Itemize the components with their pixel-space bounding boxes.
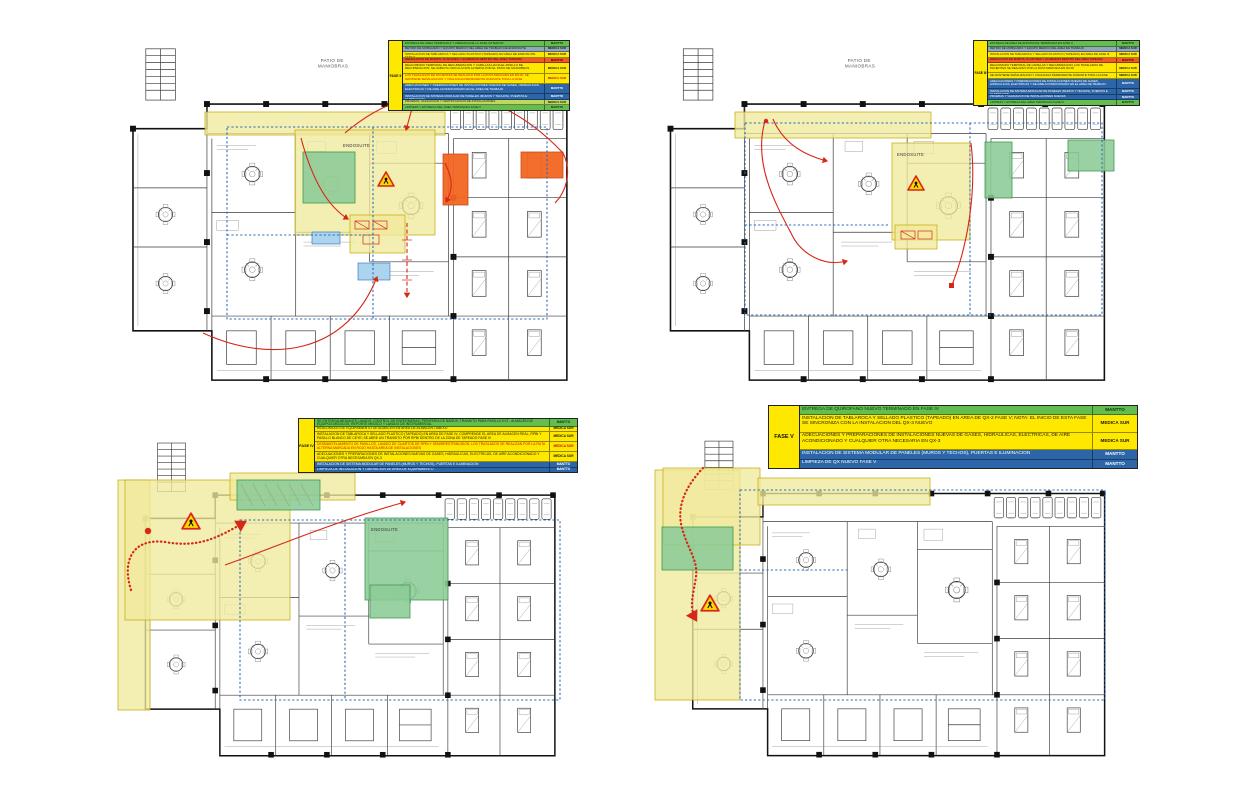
legend-row-responsible: MANTTO bbox=[544, 58, 569, 63]
legend-row: ADECUACIONES Y PREPARACIONES DE INSTALAC… bbox=[800, 433, 1137, 451]
legend-row-description: ADECUACIONES Y PREPARACIONES DE INSTALAC… bbox=[988, 79, 1116, 88]
legend-row: INSTALACION DE SISTEMA MODULAR DE PANELE… bbox=[800, 450, 1137, 459]
note-box-blue bbox=[312, 232, 340, 244]
plan-fase-v bbox=[648, 428, 1140, 765]
legend-row: LIMPIEZA DE INSTALACION Y LIBERACION DE … bbox=[315, 468, 577, 472]
legend-row-responsible: MANTTO bbox=[1092, 460, 1137, 468]
legend-row-responsible: MEDICA SUR bbox=[544, 47, 569, 52]
legend-row: SE ENTREGA MEDIANTE LAVADO: CONTROL DE E… bbox=[315, 419, 577, 427]
legend-row-description: REACOMODO TEMPORAL DE CAMILLAS Y RECUPER… bbox=[988, 63, 1116, 72]
floor-plan-drawing-fase-iv: ENDOSUITE bbox=[113, 430, 578, 765]
endosuite-label: ENDOSUITE bbox=[371, 527, 398, 532]
legend-row-description: INSTALACION DE TABLAROCA Y SELLADO PLAST… bbox=[800, 415, 1092, 432]
endosuite-label: ENDOSUITE bbox=[897, 152, 924, 157]
legend-row: ENTREGA DE QUIROFANO NUEVO TERMINADO EN … bbox=[800, 406, 1137, 415]
legend-row: LIMPIEZA Y ENTREGA DEL AREA TERMINADA FA… bbox=[403, 105, 569, 110]
legend-row-responsible: MANTTO bbox=[1116, 100, 1139, 105]
legend-row-description: INSTALACION DE SISTEMA MODULAR DE PANELE… bbox=[988, 89, 1116, 94]
legend-row-responsible: MANTTO bbox=[549, 468, 577, 472]
legend-row-description: SE ENTREGA MEDIANTE LAVADO: CONTROL DE E… bbox=[315, 419, 549, 426]
legend-row-responsible: MEDICA SUR bbox=[1092, 433, 1137, 450]
endosuite-label: ENDOSUITE bbox=[343, 143, 370, 148]
patio-label: PATIO DE MANIOBRAS bbox=[845, 58, 875, 68]
legend-row-responsible: MANTTO bbox=[1092, 450, 1137, 458]
legend-row-description: LIMPIEZA Y ENTREGA DEL AREA TERMINADA FA… bbox=[403, 105, 544, 110]
legend-row-responsible: MANTTO bbox=[549, 462, 577, 466]
legend-row-description: LIMPIEZA DE INSTALACION Y LIBERACION DE … bbox=[315, 468, 549, 472]
legend-row: REACOMODO TEMPORAL DE RECUPERACION Y CAM… bbox=[403, 63, 569, 73]
legend-row-description: LIMPIEZA Y ENTREGA DEL AREA TERMINADA FA… bbox=[988, 100, 1116, 105]
legend-row: LIMPIEZA Y ENTREGA DEL AREA TERMINADA FA… bbox=[988, 100, 1139, 105]
legend-row-description: INSTALACION DE SISTEMA MODULAR DE PANELE… bbox=[800, 450, 1092, 458]
legend-fase-iii: FASE III ENTREGA DE AREA DE ENDOSUITE TE… bbox=[973, 40, 1140, 106]
legend-row-responsible: MEDICA SUR bbox=[544, 74, 569, 83]
legend-row-responsible: MANTTO bbox=[1116, 58, 1139, 63]
plan-fase-iv: ENDOSUITE bbox=[113, 430, 578, 765]
legend-row-responsible: MANTTO bbox=[1116, 41, 1139, 46]
legend-row-description: INSTALACION DE SISTEMA MODULAR DE PANELE… bbox=[403, 94, 544, 99]
legend-row-responsible: MEDICA SUR bbox=[549, 452, 577, 461]
delivered-zone-green bbox=[985, 142, 1012, 198]
legend-row-description: RETIRO DE MOBILIARIO Y EQUIPO MEDICO DEL… bbox=[403, 47, 544, 52]
legend-row-responsible: MANTTO bbox=[1116, 79, 1139, 88]
legend-row-responsible: MEDICA SUR bbox=[544, 63, 569, 72]
legend-row: INSTALACION DE TABLAROCA Y SELLADO PLAST… bbox=[800, 415, 1137, 433]
legend-row-description: INSTALACION DE SISTEMA MODULAR DE PANELE… bbox=[315, 462, 549, 466]
patio-label: PATIO DE MANIOBRAS bbox=[318, 58, 348, 68]
legend-row-description: DESMANTELAMIENTO DE PASILLOS, LAVADO DE … bbox=[315, 442, 549, 451]
legend-row-description: ENTREGA DE AREA TERMINADA Y LIBERADA DE … bbox=[403, 41, 544, 46]
legend-row: LIMPIEZA DE QX NUEVO FASE VMANTTO bbox=[800, 460, 1137, 468]
legend-row-description: REACOMODO TEMPORAL DE RECUPERACION Y CAM… bbox=[403, 63, 544, 72]
legend-row: LOS TRASLADOS DE PACIENTES SE REALIZAN P… bbox=[403, 74, 569, 84]
delivered-zone-green bbox=[1068, 140, 1114, 171]
legend-row-responsible: MEDICA SUR bbox=[1092, 415, 1137, 432]
floor-plan-drawing-fase-v bbox=[648, 428, 1140, 765]
note-box-blue bbox=[358, 263, 390, 280]
legend-row-description: ADECUACIONES Y PREPARACIONES DE INSTALAC… bbox=[800, 433, 1092, 450]
legend-row-responsible: MEDICA SUR bbox=[1116, 47, 1139, 52]
legend-row-description: ENTREGA DE QUIROFANO NUEVO TERMINADO EN … bbox=[800, 406, 1092, 414]
legend-row-responsible: MANTTO bbox=[549, 419, 577, 426]
legend-fase-iv: FASE IV SE ENTREGA MEDIANTE LAVADO: CONT… bbox=[298, 418, 578, 473]
phase-label: FASE III bbox=[974, 41, 988, 105]
legend-row-description: PRUEBAS, VALIDACION Y CERTIFICACION DE I… bbox=[403, 100, 544, 105]
delivered-zone-green bbox=[237, 480, 320, 510]
delivered-zone-green bbox=[370, 585, 410, 618]
legend-row-responsible: MEDICA SUR bbox=[1116, 63, 1139, 72]
phase-label: FASE II bbox=[389, 41, 403, 110]
legend-row-responsible: MANTTO bbox=[544, 41, 569, 46]
legend-row-responsible: MANTTO bbox=[544, 94, 569, 99]
delivered-zone-green bbox=[662, 527, 733, 570]
legend-row: INSTALACION DE TABLAROCA Y SELLADO PLAST… bbox=[315, 432, 577, 442]
legend-row-description: ENTREGA DE AREA DE ENDOSUITE TERMINADA E… bbox=[988, 41, 1116, 46]
legend-row-responsible: MEDICA SUR bbox=[544, 52, 569, 57]
legend-row-description: INSTALACION DE TABLAROCA Y SELLADO PLAST… bbox=[315, 432, 549, 441]
legend-row-responsible: MANTTO bbox=[1116, 95, 1139, 100]
legend-row-description: LIMPIEZA DE QX NUEVO FASE V bbox=[800, 460, 1092, 468]
legend-row-description: ADECUACIONES Y PREPARACIONES DE INSTALAC… bbox=[315, 452, 549, 461]
legend-row: ADECUACIONES Y PREPARACIONES DE INSTALAC… bbox=[988, 79, 1139, 89]
legend-row-description: REACOMODO DE EQUIPAMIENTO DE ALMACEN EN … bbox=[315, 427, 549, 431]
legend-row-description: SE MANTIENE SEÑALIZACION Y VIGILANCIA PE… bbox=[988, 73, 1116, 78]
legend-fase-v: FASE V ENTREGA DE QUIROFANO NUEVO TERMIN… bbox=[768, 405, 1138, 469]
legend-row-responsible: MANTTO bbox=[1116, 89, 1139, 94]
legend-row-description: LOS TRASLADOS DE PACIENTES SE REALIZAN P… bbox=[403, 74, 544, 83]
legend-row: ADECUACIONES Y PREPARACIONES DE INSTALAC… bbox=[315, 452, 577, 462]
demolition-zone-orange bbox=[521, 152, 563, 178]
work-zone-yellow bbox=[758, 478, 930, 505]
legend-row-description: ADECUACIONES Y PREPARACIONES DE INSTALAC… bbox=[403, 84, 544, 93]
legend-row-description: INSTALACION DE TABLAROCA Y SELLADO PLAST… bbox=[988, 52, 1116, 57]
legend-row-description: DEMOLICION DE MUROS, PLAFONES Y ACABADOS… bbox=[403, 58, 544, 63]
phase-label: FASE V bbox=[769, 406, 800, 468]
legend-row-responsible: MEDICA SUR bbox=[1116, 52, 1139, 57]
legend-row-description: INSTALACION DE TABLAROCA Y SELLADO PLAST… bbox=[403, 52, 544, 57]
legend-row-responsible: MANTTO bbox=[544, 105, 569, 110]
legend-row-description: RETIRO DE MOBILIARIO Y EQUIPO MEDICO DEL… bbox=[988, 47, 1116, 52]
legend-row-description: PRUEBAS Y VALIDACION DE INSTALACIONES NU… bbox=[988, 95, 1116, 100]
legend-row-responsible: MEDICA SUR bbox=[549, 432, 577, 441]
phase-label: FASE IV bbox=[299, 419, 315, 472]
legend-row: REACOMODO TEMPORAL DE CAMILLAS Y RECUPER… bbox=[988, 63, 1139, 73]
legend-fase-ii: FASE II ENTREGA DE AREA TERMINADA Y LIBE… bbox=[388, 40, 570, 111]
legend-row: ADECUACIONES Y PREPARACIONES DE INSTALAC… bbox=[403, 84, 569, 94]
legend-row-responsible: MEDICA SUR bbox=[549, 427, 577, 431]
legend-row-responsible: MANTTO bbox=[544, 84, 569, 93]
legend-row-responsible: MEDICA SUR bbox=[1116, 73, 1139, 78]
legend-row-responsible: MANTTO bbox=[1092, 406, 1137, 414]
legend-row-description: DEMOLICION DE MUROS, PLAFONES Y ACABADOS… bbox=[988, 58, 1116, 63]
delivered-zone-green bbox=[303, 152, 355, 203]
legend-row-responsible: MEDICA SUR bbox=[544, 100, 569, 105]
legend-row: DESMANTELAMIENTO DE PASILLOS, LAVADO DE … bbox=[315, 442, 577, 452]
demolition-zone-orange bbox=[443, 154, 468, 205]
legend-row-responsible: MEDICA SUR bbox=[549, 442, 577, 451]
